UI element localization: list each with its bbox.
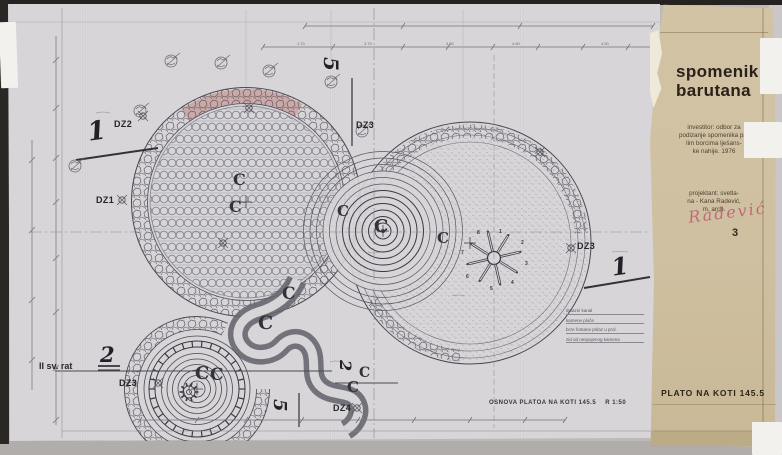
plate-label: PLATO NA KOTI 145.5: [658, 388, 768, 398]
section-marker: 1: [86, 117, 108, 145]
legend-line: zid od nespojenog kamena: [566, 337, 644, 344]
scale-label: R 1:50: [605, 400, 626, 406]
star-point-number: 4: [511, 280, 514, 286]
plan-label: DZ3: [119, 378, 137, 388]
dimension-number: 4.50: [446, 41, 454, 46]
dimension-number: 4.50: [512, 41, 520, 46]
center-mark: C: [437, 231, 449, 246]
center-mark: C: [337, 204, 349, 219]
dimension-number: 1.70: [297, 41, 305, 46]
center-mark: C: [229, 199, 242, 215]
plan-label: DZ2: [114, 119, 132, 129]
section-marker: 2: [337, 360, 353, 371]
paper-scrap: [760, 38, 782, 94]
plan-label: DZ3: [356, 120, 374, 130]
archival-plan-photo: II sv. rat OSNOVA PLATOA NA KOTI 145.5R …: [0, 0, 782, 455]
section-marker: 1: [610, 254, 630, 280]
center-mark: C: [195, 365, 209, 383]
project-title: spomenikbarutana: [676, 62, 759, 100]
sheet-number: 3: [732, 227, 738, 239]
star-point-number: 6: [466, 274, 469, 280]
title-line: barutana: [676, 81, 759, 100]
legend: dolazni kanalkamene pločebrze fontane pr…: [566, 308, 644, 346]
paper-scrap: [744, 122, 782, 158]
center-mark: C: [258, 314, 273, 333]
legend-line: brze fontane prilaz u prol.: [566, 327, 644, 334]
center-mark: C: [374, 218, 388, 236]
star-point-number: 2: [521, 240, 524, 246]
center-mark: C: [359, 366, 370, 380]
center-mark: C: [282, 286, 296, 303]
plan-label: DZ1: [96, 195, 114, 205]
title-strip-fold: [652, 404, 776, 405]
paper-scrap: [752, 422, 782, 455]
title-strip-frame-line: [660, 32, 768, 33]
star-point-number: 8: [477, 230, 480, 236]
center-mark: C: [210, 367, 224, 384]
section-marker: 5: [270, 399, 288, 412]
center-mark: C: [233, 172, 246, 188]
paper-scrap: [0, 22, 18, 89]
section-marker: 5: [321, 57, 341, 71]
dimension-number: 4.50: [601, 41, 609, 46]
star-point-number: 5: [490, 286, 493, 292]
plan-caption: OSNOVA PLATOA NA KOTI 145.5R 1:50: [489, 400, 626, 406]
plan-label: DZ4: [333, 403, 351, 413]
star-point-number: 7: [461, 250, 464, 256]
legend-line: dolazni kanal: [566, 308, 644, 315]
star-point-number: 1: [499, 229, 502, 235]
plan-label: DZ3: [577, 241, 595, 251]
legend-line: kamene ploče: [566, 318, 644, 325]
title-line: spomenik: [676, 62, 759, 81]
architect-line: projektant: svetla-: [658, 190, 770, 198]
section-marker: 2: [100, 344, 115, 365]
dimension-number: 3.70: [364, 41, 372, 46]
caption-text: OSNOVA PLATOA NA KOTI 145.5: [489, 400, 596, 406]
center-mark: C: [347, 380, 359, 395]
star-point-number: 3: [525, 261, 528, 267]
war-label: II sv. rat: [39, 361, 72, 371]
